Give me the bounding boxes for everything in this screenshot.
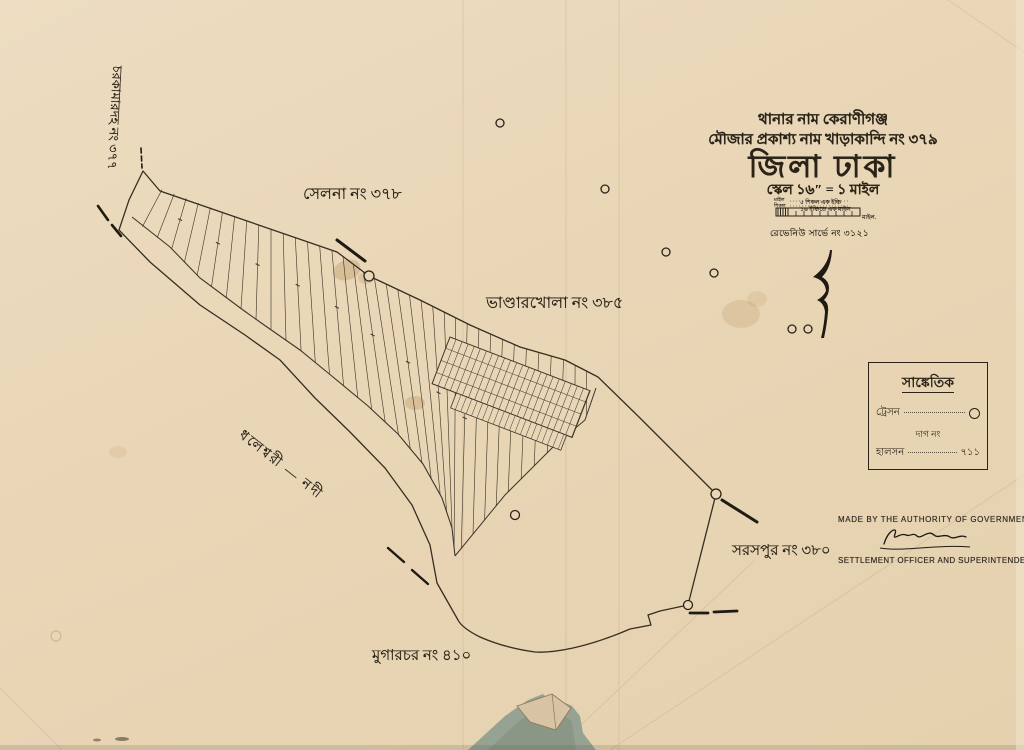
scale-bar-unit-right: মাইল. — [862, 212, 876, 223]
legend-row-station: ট্রেসন — [876, 405, 980, 422]
brace-mark — [813, 250, 832, 338]
station-circle — [511, 511, 520, 520]
legend-row-value: ৭১১ — [961, 445, 980, 462]
legend-row-label: ট্রেসন — [876, 405, 900, 422]
right-edge-highlight — [1016, 0, 1024, 750]
legend-row-label: হালসন — [876, 445, 904, 462]
paper-tear — [468, 694, 596, 750]
legend-leader-dots — [904, 411, 965, 413]
label-north-mouza: সেলনা নং ৩৭৮ — [303, 181, 402, 208]
legend-leader-dots — [908, 451, 956, 453]
legend-station-circle-icon — [969, 408, 980, 419]
scale-bar-note2: ১৬ ইঞ্চিতে এক মাইল — [800, 204, 851, 215]
bottom-edge-shadow — [0, 745, 1024, 750]
mouza-boundary-path — [119, 171, 716, 652]
legend-row-dag: দাগ নং — [869, 427, 987, 442]
station-circle — [711, 489, 721, 499]
station-circle — [496, 119, 504, 127]
label-southeast-mouza: সরসপুর নং ৩৮০ — [732, 539, 831, 564]
revenue-survey-note: রেভেনিউ সার্ভে নং ৩১২১ — [770, 226, 869, 241]
station-circle — [601, 185, 609, 193]
station-circle — [684, 601, 693, 610]
station-circle — [662, 248, 670, 256]
legend-title: সাঙ্কেতিক — [869, 371, 987, 395]
legend-row-halsan: হালসন ৭১১ — [876, 445, 980, 462]
label-south-mouza: মুগারচর নং ৪১০ — [372, 644, 471, 669]
scale-bar-unit-left2: শিকল — [774, 203, 786, 211]
plot-cluster-grid — [426, 337, 590, 452]
station-circle — [364, 271, 374, 281]
station-circle — [788, 325, 796, 333]
boundary-dash-marks — [98, 148, 757, 613]
scanned-survey-map: থানার নাম কেরাণীগঞ্জ মৌজার প্রকাশ্য নাম … — [0, 0, 1024, 750]
officer-line: SETTLEMENT OFFICER AND SUPERINTENDENT OF… — [838, 556, 1024, 565]
label-east-mouza: ভাণ্ডারখোলা নং ৩৮৫ — [486, 290, 623, 317]
station-circle — [710, 269, 718, 277]
authority-line: MADE BY THE AUTHORITY OF GOVERNMENT IN 1… — [838, 515, 1024, 524]
legend-box: সাঙ্কেতিক ট্রেসন দাগ নং হালসন ৭১১ — [868, 362, 988, 470]
station-circle — [804, 325, 812, 333]
signature — [878, 524, 974, 559]
